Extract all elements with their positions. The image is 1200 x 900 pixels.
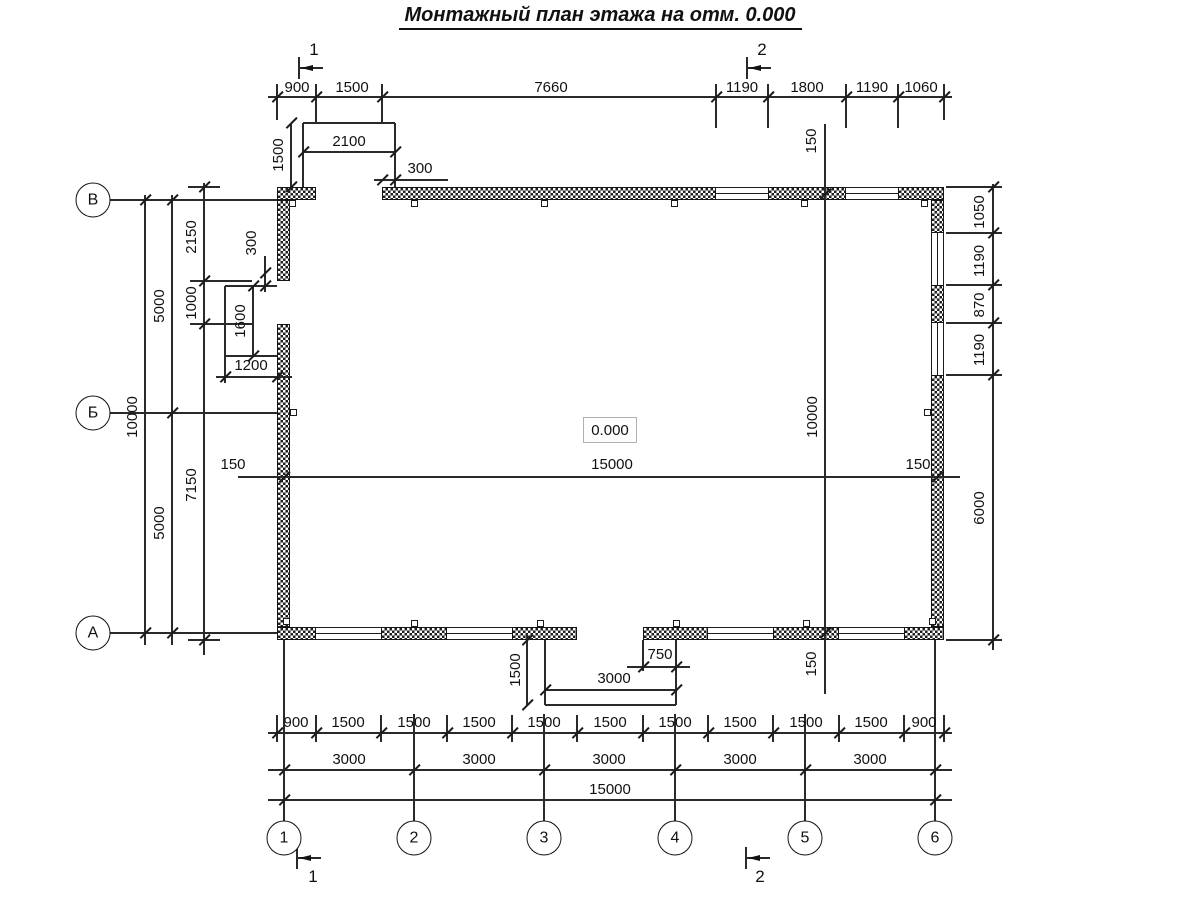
window — [708, 627, 773, 640]
wall-segment — [768, 187, 846, 200]
dimension-label: 1500 — [397, 715, 430, 731]
dim-line — [642, 715, 643, 742]
dim-line — [315, 715, 316, 742]
dim-line — [897, 84, 898, 128]
axis-bubble: 5 — [788, 821, 823, 856]
dimension-label: 1500 — [854, 715, 887, 731]
axis-bubble: В — [76, 183, 111, 218]
wall-segment — [277, 187, 316, 200]
axis-bubble: 6 — [918, 821, 953, 856]
section-arrow-icon — [299, 855, 311, 861]
wall-segment — [931, 200, 944, 233]
wall-segment — [381, 627, 447, 640]
dim-line — [190, 280, 252, 281]
drawing-title-text: Монтажный план этажа на отм. 0.000 — [399, 4, 802, 30]
wall-segment — [931, 285, 944, 323]
dimension-label: 10000 — [805, 396, 821, 438]
elevation-mark-value: 0.000 — [591, 422, 629, 439]
axis-bubble: 2 — [397, 821, 432, 856]
axis-bubble: Б — [76, 396, 111, 431]
dim-line — [268, 732, 952, 733]
dim-line — [824, 124, 825, 694]
dimension-label: 1500 — [508, 653, 524, 686]
wall-segment — [643, 627, 708, 640]
panel-joint-square — [537, 620, 544, 627]
window — [931, 323, 944, 375]
dimension-label: 1050 — [972, 195, 988, 228]
dimension-label: 7150 — [184, 468, 200, 501]
window — [716, 187, 768, 200]
dim-line — [171, 195, 172, 645]
dim-line — [544, 640, 545, 705]
wall-segment — [382, 187, 716, 200]
dimension-label: 1500 — [593, 715, 626, 731]
dim-line — [845, 84, 846, 128]
wall-segment — [898, 187, 944, 200]
section-arrow-icon — [749, 65, 761, 71]
dimension-label: 750 — [647, 647, 672, 663]
dim-line — [446, 715, 447, 742]
dimension-label: 2100 — [332, 134, 365, 150]
panel-joint-square — [290, 409, 297, 416]
panel-joint-square — [289, 200, 296, 207]
dimension-label: 150 — [220, 457, 245, 473]
panel-joint-square — [283, 618, 290, 625]
dimension-label: 1190 — [726, 80, 758, 96]
dimension-label: 3000 — [597, 671, 630, 687]
wall-segment — [931, 375, 944, 627]
wall-segment — [512, 627, 577, 640]
dimension-label: 1190 — [856, 80, 888, 96]
dimension-label: 6000 — [972, 491, 988, 524]
dimension-label: 1000 — [184, 286, 200, 319]
dimension-label: 5000 — [152, 506, 168, 539]
dim-line — [268, 769, 952, 770]
dimension-label: 900 — [911, 715, 936, 731]
dim-line — [943, 84, 944, 120]
wall-segment — [904, 627, 944, 640]
dim-line — [224, 356, 225, 383]
dim-line — [715, 84, 716, 128]
dimension-label: 1500 — [658, 715, 691, 731]
window — [447, 627, 512, 640]
section-mark-label: 2 — [757, 41, 766, 59]
panel-joint-square — [541, 200, 548, 207]
window — [839, 627, 904, 640]
dimension-label: 3000 — [462, 752, 495, 768]
dim-line — [110, 199, 277, 200]
dimension-label: 15000 — [589, 782, 631, 798]
window — [316, 627, 381, 640]
section-mark-label: 1 — [308, 868, 317, 886]
section-arrow-icon — [748, 855, 760, 861]
dimension-label: 7660 — [534, 80, 567, 96]
dimension-label: 1500 — [527, 715, 560, 731]
dim-line — [276, 715, 277, 742]
window — [931, 233, 944, 285]
dim-line — [315, 84, 316, 123]
panel-joint-square — [673, 620, 680, 627]
dimension-label: 3000 — [853, 752, 886, 768]
dim-line — [707, 715, 708, 742]
panel-joint-square — [803, 620, 810, 627]
dimension-label: 3000 — [723, 752, 756, 768]
dimension-label: 900 — [283, 715, 308, 731]
dim-line — [381, 84, 382, 123]
dim-line — [224, 286, 225, 356]
dim-line — [545, 689, 676, 690]
panel-joint-square — [924, 409, 931, 416]
dimension-label: 10000 — [125, 396, 141, 438]
dim-line — [675, 640, 676, 705]
dim-line — [144, 195, 145, 645]
section-mark-label: 2 — [755, 868, 764, 886]
dim-line — [276, 84, 277, 120]
elevation-mark: 0.000 — [583, 417, 637, 443]
dim-line — [374, 179, 448, 180]
dimension-label: 15000 — [591, 457, 633, 473]
panel-joint-square — [921, 200, 928, 207]
dimension-label: 1500 — [271, 138, 287, 171]
dimension-label: 2150 — [184, 220, 200, 253]
dimension-label: 1500 — [789, 715, 822, 731]
dimension-label: 900 — [284, 80, 309, 96]
dim-line — [238, 476, 960, 477]
dim-line — [252, 286, 253, 356]
dim-line — [992, 184, 993, 650]
dim-line — [268, 96, 952, 97]
dim-line — [380, 715, 381, 742]
dimension-label: 150 — [905, 457, 930, 473]
dim-line — [526, 634, 527, 705]
dimension-label: 1200 — [234, 358, 267, 374]
dimension-label: 1500 — [331, 715, 364, 731]
dim-line — [302, 123, 303, 187]
dim-line — [303, 151, 395, 152]
section-mark-label: 1 — [309, 41, 318, 59]
axis-bubble: 4 — [658, 821, 693, 856]
dim-line — [627, 666, 690, 667]
wall-segment — [277, 627, 316, 640]
dim-line — [110, 632, 277, 633]
dimension-label: 1600 — [233, 304, 249, 337]
panel-joint-square — [411, 200, 418, 207]
dimension-label: 3000 — [332, 752, 365, 768]
axis-bubble: А — [76, 616, 111, 651]
dim-line — [838, 715, 839, 742]
axis-bubble: 3 — [527, 821, 562, 856]
dimension-label: 1800 — [790, 80, 823, 96]
dim-line — [290, 123, 291, 187]
drawing-title: Монтажный план этажа на отм. 0.000 — [0, 4, 1200, 27]
dimension-label: 1060 — [904, 80, 937, 96]
window — [846, 187, 898, 200]
dimension-label: 1500 — [335, 80, 368, 96]
dimension-label: 150 — [804, 128, 820, 153]
section-arrow-icon — [301, 65, 313, 71]
dimension-label: 1190 — [972, 334, 988, 366]
axis-bubble: 1 — [267, 821, 302, 856]
dim-line — [767, 84, 768, 128]
dimension-label: 1500 — [723, 715, 756, 731]
dimension-label: 300 — [407, 161, 432, 177]
dim-line — [772, 715, 773, 742]
dim-line — [511, 715, 512, 742]
floor-plan-drawing: Монтажный план этажа на отм. 0.000 0.000… — [0, 0, 1200, 900]
dimension-label: 870 — [972, 292, 988, 317]
wall-segment — [277, 200, 290, 281]
panel-joint-square — [411, 620, 418, 627]
dimension-label: 150 — [804, 651, 820, 676]
dimension-label: 300 — [244, 230, 260, 255]
panel-joint-square — [671, 200, 678, 207]
dimension-label: 5000 — [152, 289, 168, 322]
dimension-label: 3000 — [592, 752, 625, 768]
dimension-label: 1500 — [462, 715, 495, 731]
panel-joint-square — [801, 200, 808, 207]
dim-line — [268, 799, 952, 800]
dim-line — [216, 376, 292, 377]
dim-line — [943, 715, 944, 742]
dim-line — [576, 715, 577, 742]
dimension-label: 1190 — [972, 245, 988, 277]
dim-line — [203, 183, 204, 655]
panel-joint-square — [929, 618, 936, 625]
dim-line — [545, 704, 676, 705]
dim-line — [903, 715, 904, 742]
